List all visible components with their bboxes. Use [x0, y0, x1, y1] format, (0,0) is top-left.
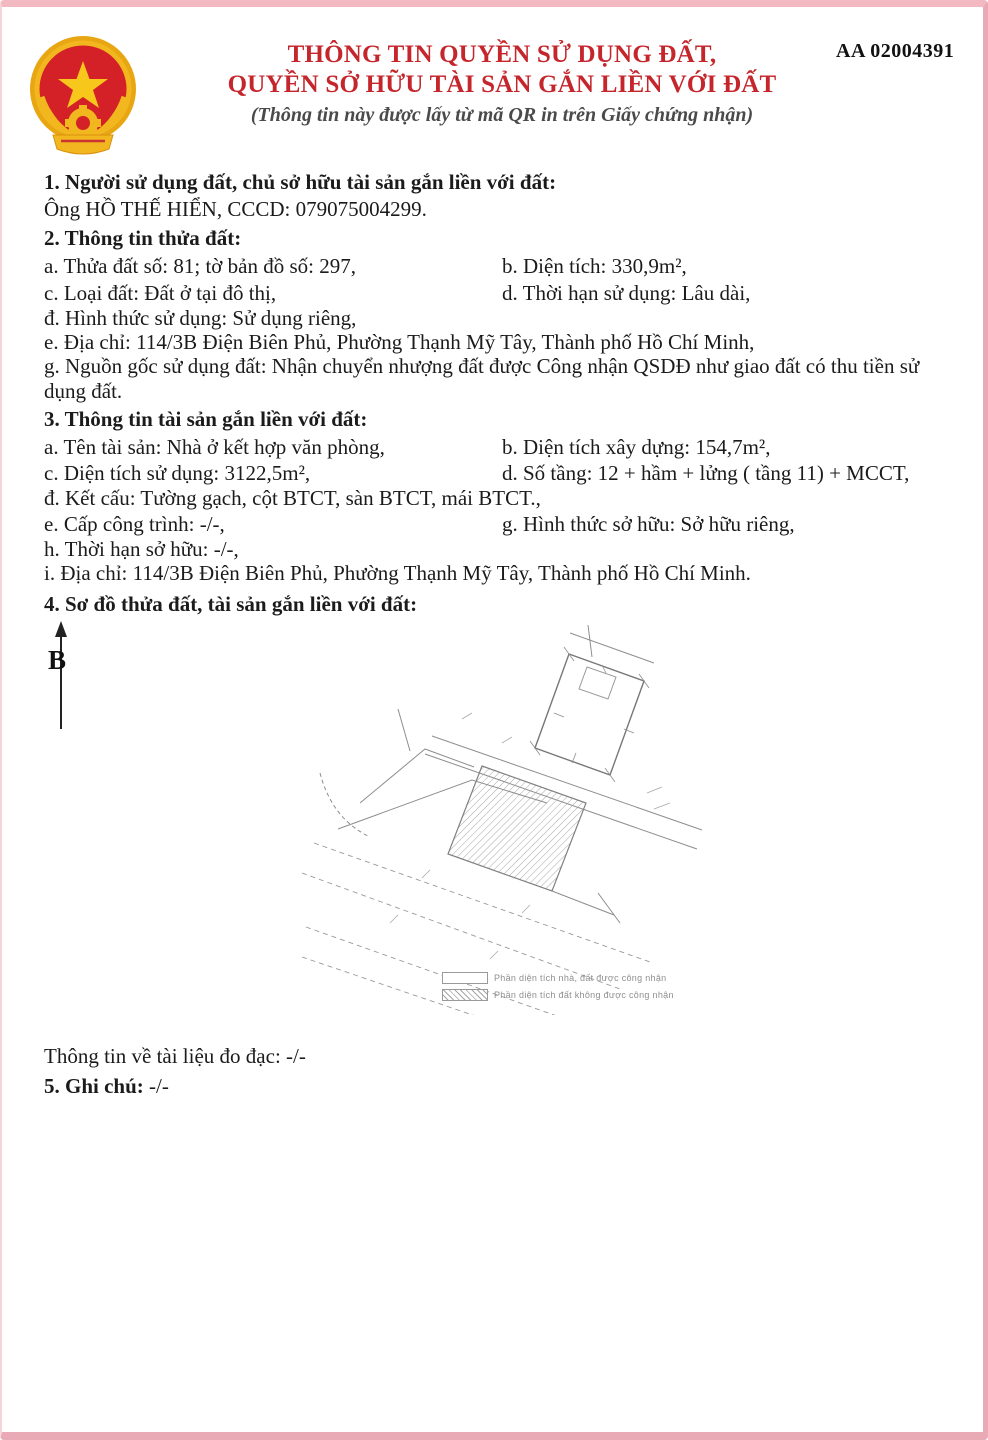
- built-area: b. Diện tích xây dựng: 154,7m²,: [502, 435, 770, 460]
- ownership-term: h. Thời hạn sở hữu: -/-,: [44, 537, 239, 562]
- note-label: 5. Ghi chú:: [44, 1074, 144, 1098]
- land-type: c. Loại đất: Đất ở tại đô thị,: [44, 281, 276, 306]
- site-plan-diagram: [302, 623, 732, 1015]
- parcel-area: b. Diện tích: 330,9m²,: [502, 254, 687, 279]
- title-subtitle: (Thông tin này được lấy từ mã QR in trên…: [182, 104, 822, 127]
- vietnam-emblem-icon: [27, 31, 139, 159]
- floor-count: d. Số tầng: 12 + hầm + lửng ( tầng 11) +…: [502, 461, 909, 486]
- south-boundary-segment: [552, 891, 614, 915]
- land-term: d. Thời hạn sử dụng: Lâu dài,: [502, 281, 750, 306]
- section3-heading: 3. Thông tin tài sản gắn liền với đất:: [44, 407, 367, 432]
- section4-heading: 4. Sơ đồ thửa đất, tài sản gắn liền với …: [44, 592, 417, 617]
- construction-class: e. Cấp công trình: -/-,: [44, 512, 225, 537]
- legend-row-not-recognized: Phần diện tích đất không được công nhận: [442, 986, 702, 1003]
- parcel-number: a. Thửa đất số: 81; tờ bản đồ số: 297,: [44, 254, 356, 279]
- land-origin: g. Nguồn gốc sử dụng đất: Nhận chuyển nh…: [44, 354, 944, 404]
- document-title: THÔNG TIN QUYỀN SỬ DỤNG ĐẤT, QUYỀN SỞ HỮ…: [182, 40, 822, 127]
- asset-address: i. Địa chỉ: 114/3B Điện Biên Phủ, Phường…: [44, 561, 751, 586]
- neighbor-boundary-3: [398, 709, 410, 751]
- owner-info: Ông HỒ THẾ HIỂN, CCCD: 079075004299.: [44, 197, 427, 222]
- legend-label-not-recognized: Phần diện tích đất không được công nhận: [494, 990, 674, 1000]
- title-line-2: QUYỀN SỞ HỮU TÀI SẢN GẮN LIỀN VỚI ĐẤT: [182, 70, 822, 100]
- ownership-form: g. Hình thức sở hữu: Sở hữu riêng,: [502, 512, 795, 537]
- section1-heading: 1. Người sử dụng đất, chủ sở hữu tài sản…: [44, 170, 556, 195]
- hatched-area: [448, 766, 586, 891]
- use-area: c. Diện tích sử dụng: 3122,5m²,: [44, 461, 310, 486]
- curved-road-edge: [320, 773, 370, 837]
- note-line: 5. Ghi chú: -/-: [44, 1074, 169, 1099]
- note-value: -/-: [149, 1074, 169, 1098]
- neighbor-boundary-1: [360, 749, 474, 803]
- inner-structure-outline: [579, 667, 616, 699]
- building-outline: [535, 654, 644, 775]
- land-address: e. Địa chỉ: 114/3B Điện Biên Phủ, Phường…: [44, 330, 754, 355]
- measurement-doc-info: Thông tin về tài liệu đo đạc: -/-: [44, 1044, 306, 1069]
- legend-swatch-not-recognized: [442, 989, 488, 1001]
- site-plan-legend: Phần diện tích nhà, đất được công nhận P…: [442, 969, 702, 1003]
- north-arrow-icon: B: [40, 619, 84, 737]
- north-label: B: [48, 645, 66, 676]
- structure-info: đ. Kết cấu: Tường gạch, cột BTCT, sàn BT…: [44, 486, 541, 511]
- land-use-form: đ. Hình thức sử dụng: Sử dụng riêng,: [44, 306, 356, 331]
- section2-heading: 2. Thông tin thửa đất:: [44, 226, 241, 251]
- asset-name: a. Tên tài sản: Nhà ở kết hợp văn phòng,: [44, 435, 385, 460]
- legend-row-recognized: Phần diện tích nhà, đất được công nhận: [442, 969, 702, 986]
- title-line-1: THÔNG TIN QUYỀN SỬ DỤNG ĐẤT,: [182, 40, 822, 70]
- land-certificate-page: THÔNG TIN QUYỀN SỬ DỤNG ĐẤT, QUYỀN SỞ HỮ…: [0, 0, 988, 1440]
- serial-number: AA 02004391: [836, 40, 954, 63]
- legend-label-recognized: Phần diện tích nhà, đất được công nhận: [494, 973, 666, 983]
- legend-swatch-recognized: [442, 972, 488, 984]
